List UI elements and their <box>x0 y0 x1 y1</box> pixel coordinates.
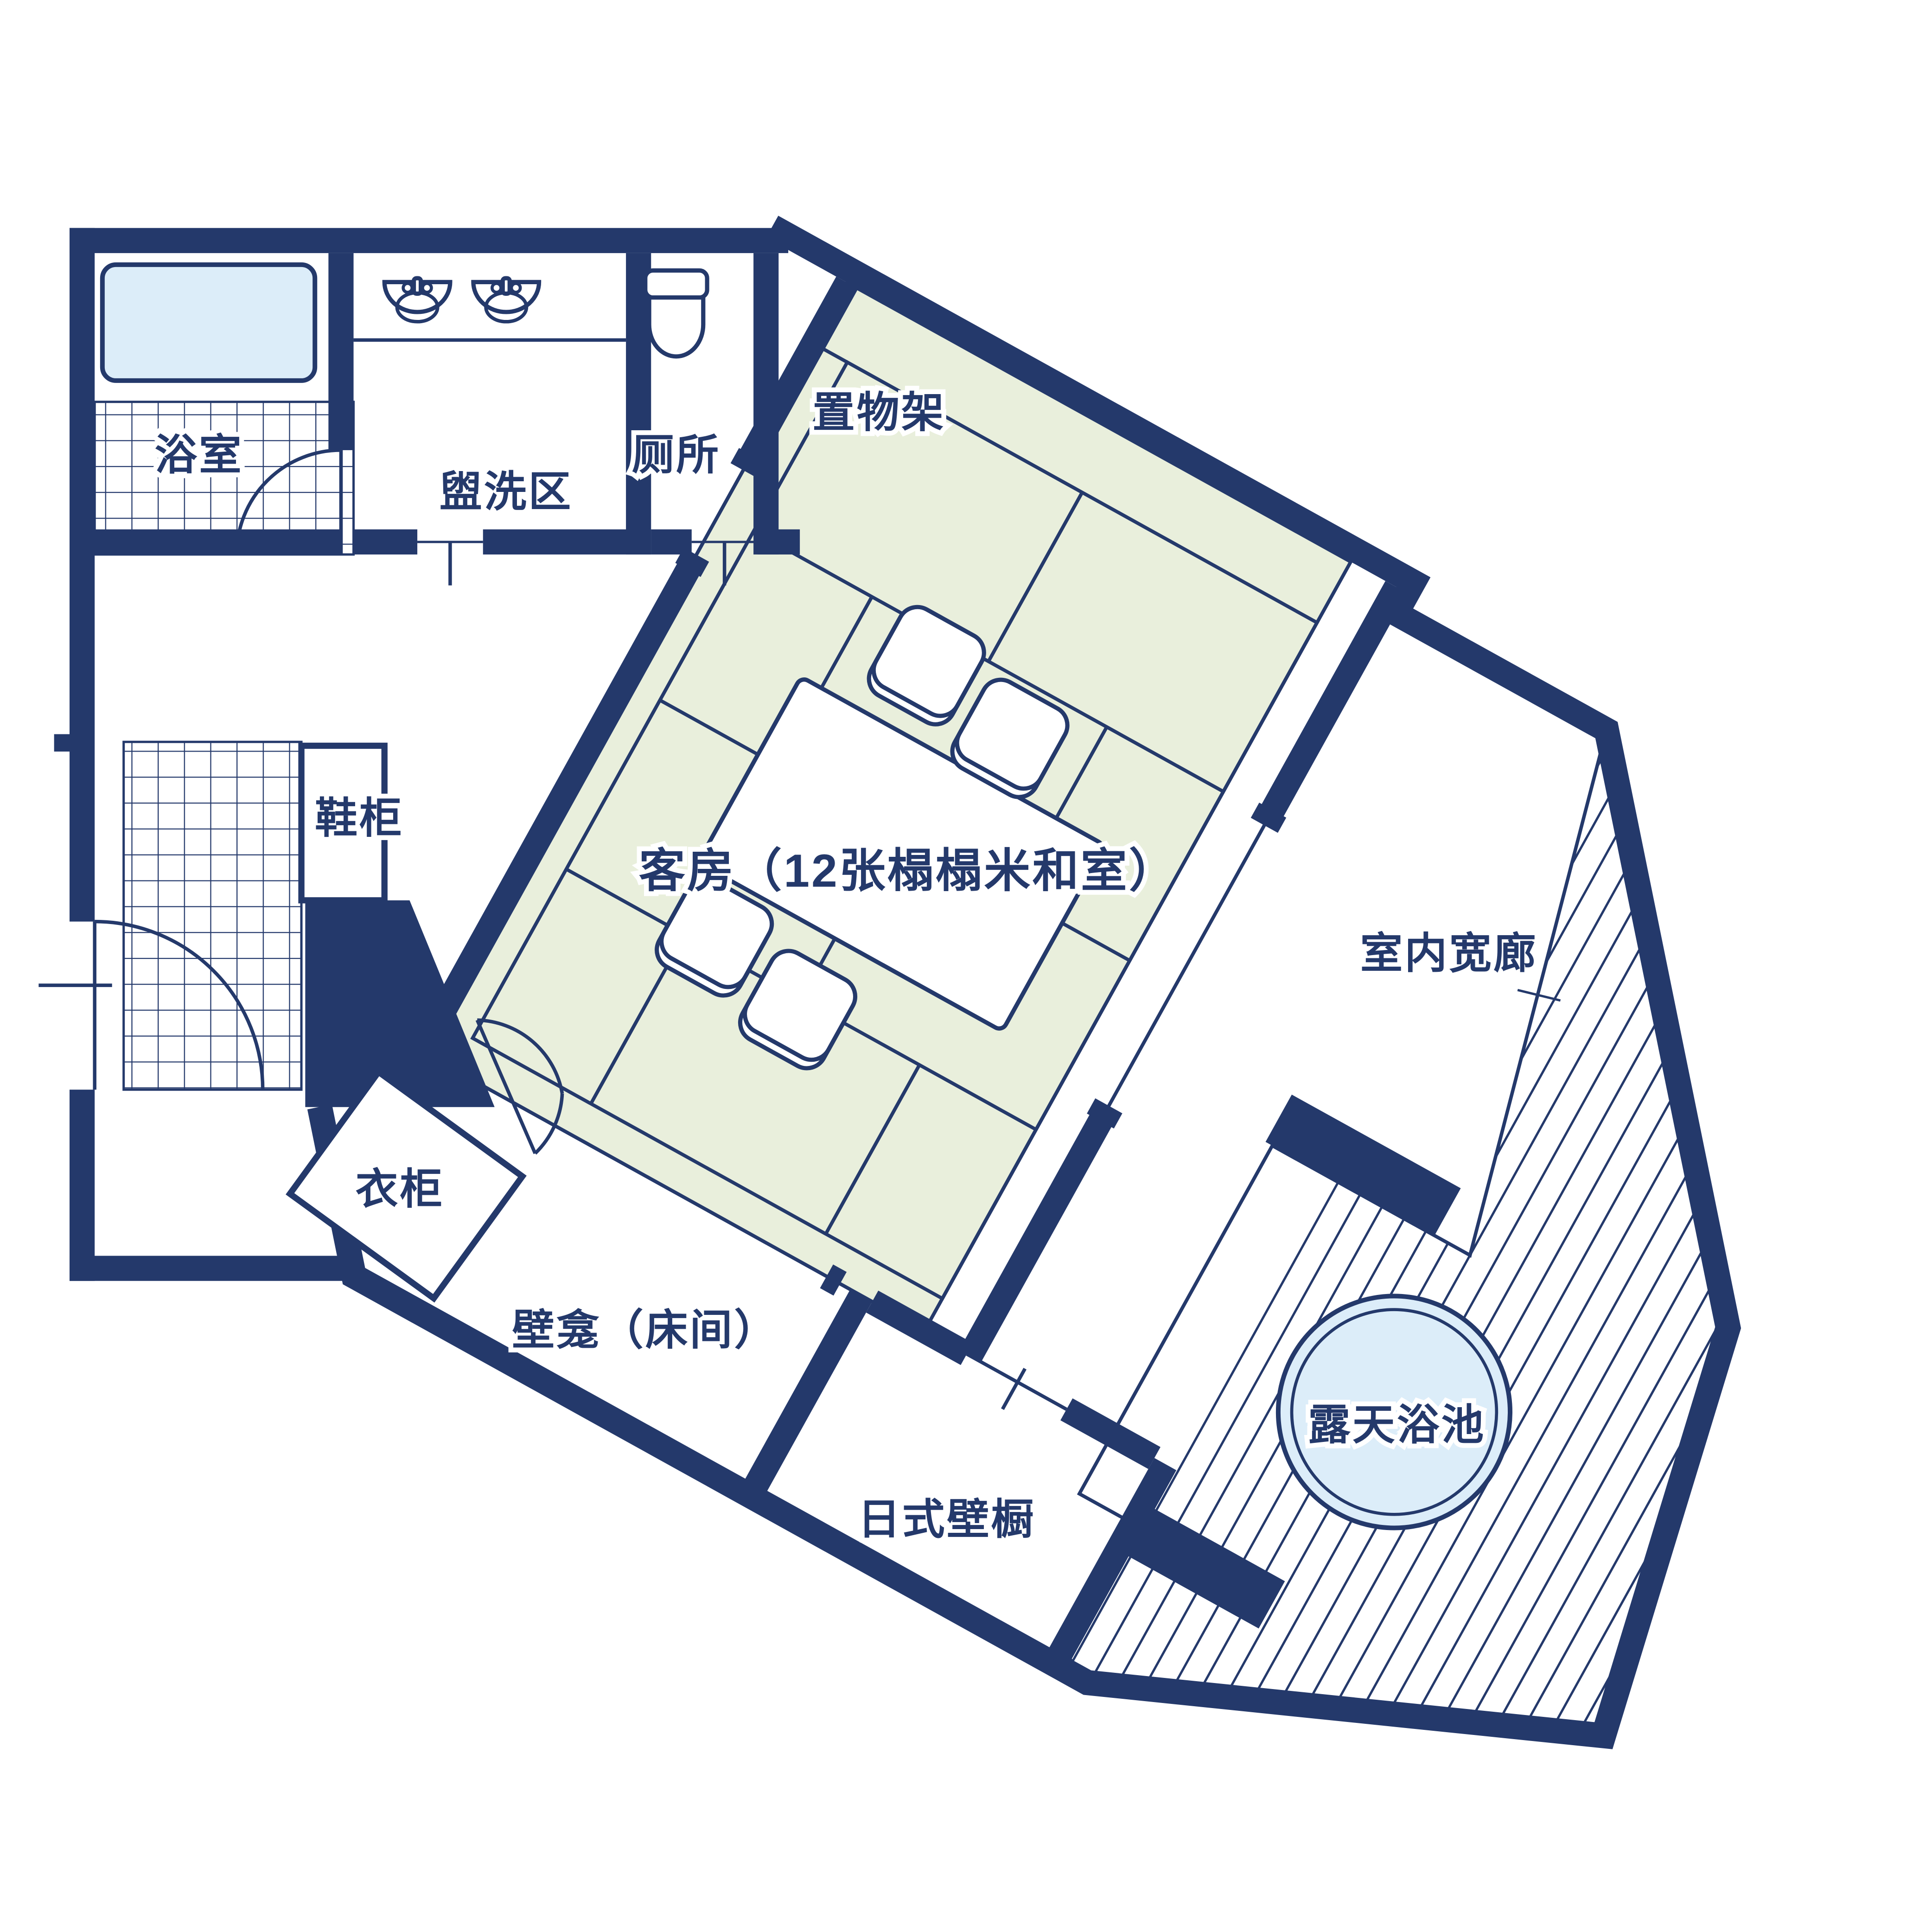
label-closet: 日式壁橱 <box>858 1496 1035 1543</box>
label-wardrobe: 衣柜 <box>356 1166 445 1213</box>
label-toilet: 厕所 <box>632 432 721 479</box>
sink-icon <box>473 278 539 322</box>
label-washing-area: 盥洗区 <box>440 468 573 516</box>
label-guest-room: 客房（12张榻榻米和室） <box>639 845 1177 897</box>
toilet-icon <box>645 270 707 356</box>
bathtub <box>102 265 315 381</box>
floorplan-page: 浴室 盥洗区 厕所 置物架 鞋柜 客房（12张榻榻米和室） 衣柜 室内宽廊 壁龛… <box>0 0 1932 1932</box>
label-veranda: 室内宽廊 <box>1360 930 1538 977</box>
label-open-air-bath: 露天浴池 <box>1308 1401 1486 1448</box>
sink-icon <box>384 278 450 322</box>
label-alcove: 壁龛（床间） <box>512 1307 778 1354</box>
floorplan-svg: 浴室 盥洗区 厕所 置物架 鞋柜 客房（12张榻榻米和室） 衣柜 室内宽廊 壁龛… <box>0 0 1932 1932</box>
entrance-tile-floor <box>124 742 301 1090</box>
label-shoe-cabinet: 鞋柜 <box>315 795 404 842</box>
label-shelf: 置物架 <box>812 389 945 436</box>
label-bathroom: 浴室 <box>154 432 243 479</box>
